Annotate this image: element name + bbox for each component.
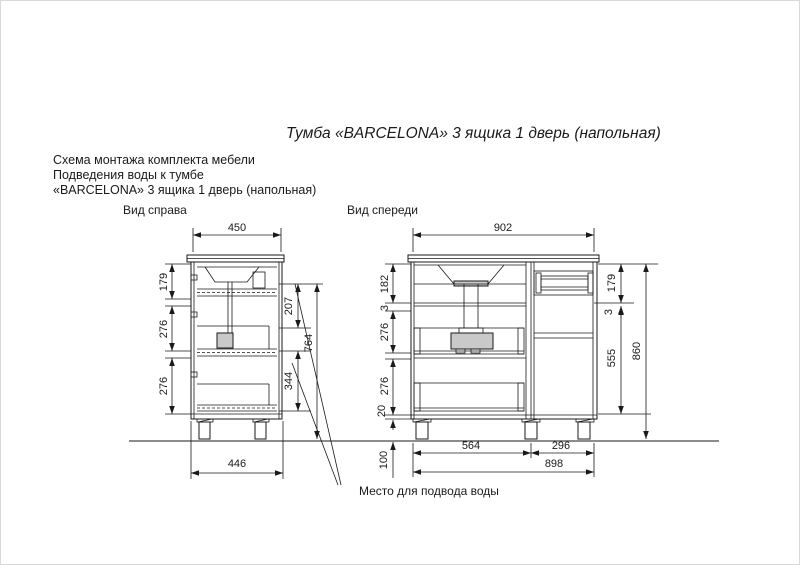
front-cabinet <box>408 255 599 439</box>
subtitle-line-1: Схема монтажа комплекта мебели <box>53 153 255 167</box>
front-dims-right: 179 3 555 860 <box>594 264 658 439</box>
dim-water-supply-height: 100 <box>378 451 390 469</box>
water-supply-note: Место для подвода воды <box>359 484 499 498</box>
leader-line-lower <box>292 363 338 485</box>
side-leg-right <box>255 422 266 439</box>
dim-front-bottom-total: 898 <box>545 458 563 470</box>
dim-side-top-width: 450 <box>228 222 246 234</box>
dim-front-right-overall: 860 <box>631 342 643 360</box>
dim-side-right-overall: 764 <box>303 334 315 352</box>
front-dims-left: 182 3 276 276 20 <box>376 264 411 430</box>
side-dim-top-width: 450 <box>193 222 281 252</box>
front-leg-right <box>578 422 590 439</box>
front-dims-bottom: 564 296 898 100 <box>378 440 594 478</box>
side-siphon <box>217 333 233 348</box>
dim-front-right-2: 3 <box>603 309 615 315</box>
front-view-label: Вид спереди <box>347 203 418 217</box>
assembly-drawing: Тумба «BARCELONA» 3 ящика 1 дверь (напол… <box>1 1 799 564</box>
side-view: Вид справа 450 <box>123 203 323 479</box>
front-view: Вид спереди 902 <box>347 203 658 478</box>
front-dim-top-width: 902 <box>413 222 594 252</box>
side-dim-bottom: 446 <box>191 421 283 479</box>
leader-line-upper <box>295 284 341 485</box>
dim-front-left-1: 182 <box>379 275 391 293</box>
dim-side-right-2: 344 <box>283 372 295 390</box>
drawing-page: Тумба «BARCELONA» 3 ящика 1 дверь (напол… <box>0 0 800 565</box>
side-dims-right: 207 344 764 <box>279 284 323 439</box>
dim-front-left-5: 20 <box>376 405 388 417</box>
dim-front-left-4: 276 <box>379 377 391 395</box>
dim-front-top-width: 902 <box>494 222 512 234</box>
subtitle-line-3: «BARCELONA» 3 ящика 1 дверь (напольная) <box>53 183 316 197</box>
dim-front-left-2: 3 <box>379 305 391 311</box>
dim-side-bottom-width: 446 <box>228 458 246 470</box>
front-sink-bottom <box>454 281 488 286</box>
dim-front-right-1: 179 <box>606 274 618 292</box>
side-cabinet <box>187 255 284 439</box>
subtitle-line-2: Подведения воды к тумбе <box>53 168 204 182</box>
dim-front-bottom-right: 296 <box>552 440 570 452</box>
side-view-label: Вид справа <box>123 203 187 217</box>
water-supply-annotation: Место для подвода воды <box>292 284 499 498</box>
dim-side-left-2: 276 <box>158 320 170 338</box>
dim-side-right-1: 207 <box>283 297 295 315</box>
side-leg-left <box>199 422 210 439</box>
page-title: Тумба «BARCELONA» 3 ящика 1 дверь (напол… <box>286 125 661 142</box>
dim-side-left-3: 276 <box>158 377 170 395</box>
front-leg-middle <box>525 422 537 439</box>
front-leg-left <box>416 422 428 439</box>
side-dims-left: 179 276 276 <box>158 264 191 414</box>
dim-front-bottom-left: 564 <box>462 440 480 452</box>
dim-side-left-1: 179 <box>158 273 170 291</box>
dim-front-left-3: 276 <box>379 323 391 341</box>
dim-front-right-3: 555 <box>606 349 618 367</box>
front-siphon <box>451 333 493 349</box>
